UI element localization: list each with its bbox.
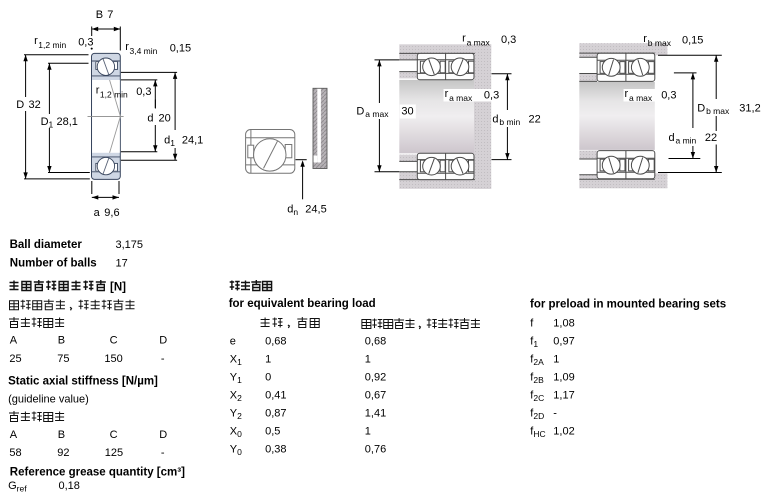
svg-text:0,3: 0,3 xyxy=(661,89,676,101)
svg-text:25: 25 xyxy=(9,353,21,365)
svg-text:22: 22 xyxy=(705,132,717,144)
svg-text:D1: D1 xyxy=(41,116,54,130)
svg-text:Y2: Y2 xyxy=(230,408,242,422)
svg-text:3,4 min: 3,4 min xyxy=(130,46,158,56)
svg-text:0,76: 0,76 xyxy=(365,443,386,455)
svg-text:a max: a max xyxy=(467,37,491,47)
svg-text:f2D: f2D xyxy=(530,408,544,422)
svg-text:f2A: f2A xyxy=(530,353,544,367)
svg-text:1,09: 1,09 xyxy=(553,371,574,383)
svg-text:0,67: 0,67 xyxy=(365,389,386,401)
svg-text:r: r xyxy=(625,88,629,100)
svg-text:b max: b max xyxy=(706,106,730,116)
svg-text:58: 58 xyxy=(9,447,21,459)
svg-text:b min: b min xyxy=(499,117,520,127)
svg-text:1: 1 xyxy=(265,353,271,365)
svg-text:1: 1 xyxy=(365,426,371,438)
svg-text:f2C: f2C xyxy=(530,389,544,403)
svg-text:B: B xyxy=(58,335,65,347)
svg-text:24,5: 24,5 xyxy=(305,204,326,216)
svg-text:31,2: 31,2 xyxy=(739,102,760,114)
svg-text:24,1: 24,1 xyxy=(182,135,203,147)
svg-text:92: 92 xyxy=(57,447,69,459)
svg-text:Ball diameter: Ball diameter xyxy=(10,239,83,251)
svg-text:0,18: 0,18 xyxy=(59,480,80,492)
svg-text:f: f xyxy=(530,317,534,329)
svg-text:C: C xyxy=(110,429,118,441)
svg-text:[N]: [N] xyxy=(110,281,126,293)
svg-text:(guideline value): (guideline value) xyxy=(8,393,89,405)
svg-text:for preload in mounted bearing: for preload in mounted bearing sets xyxy=(530,299,726,311)
svg-text:for equivalent bearing load: for equivalent bearing load xyxy=(229,298,376,310)
svg-text:a: a xyxy=(94,207,101,219)
svg-text:1,08: 1,08 xyxy=(553,317,574,329)
svg-text:1: 1 xyxy=(553,353,559,365)
svg-text:-: - xyxy=(161,447,165,459)
svg-text:28,1: 28,1 xyxy=(57,116,78,128)
svg-text:Number of balls: Number of balls xyxy=(10,257,97,269)
svg-text:17: 17 xyxy=(116,257,128,269)
svg-text:0,3: 0,3 xyxy=(136,86,151,98)
svg-text:75: 75 xyxy=(57,353,69,365)
svg-text:D: D xyxy=(697,102,705,114)
svg-text:a max: a max xyxy=(449,93,473,103)
svg-text:20: 20 xyxy=(159,112,171,124)
svg-text:A: A xyxy=(10,335,18,347)
svg-text:Y1: Y1 xyxy=(230,371,242,385)
svg-text:X2: X2 xyxy=(230,389,242,403)
svg-text:0,41: 0,41 xyxy=(265,389,286,401)
svg-text:A: A xyxy=(10,429,18,441)
svg-text:B: B xyxy=(58,429,65,441)
svg-text:9,6: 9,6 xyxy=(104,207,119,219)
svg-text:1,02: 1,02 xyxy=(553,426,574,438)
svg-text:0,3: 0,3 xyxy=(78,37,93,49)
svg-text:1,2 min: 1,2 min xyxy=(38,40,66,50)
svg-text:r: r xyxy=(445,88,449,100)
svg-text:D: D xyxy=(159,335,167,347)
svg-text:C: C xyxy=(110,335,118,347)
svg-text:f2B: f2B xyxy=(530,371,544,385)
svg-text:D: D xyxy=(16,99,24,111)
svg-text:1,2 min: 1,2 min xyxy=(100,89,128,99)
svg-text:r: r xyxy=(643,33,647,45)
svg-text:a min: a min xyxy=(676,135,697,145)
svg-text:X1: X1 xyxy=(230,353,242,367)
svg-text:0,3: 0,3 xyxy=(484,90,499,102)
svg-text:0,87: 0,87 xyxy=(265,408,286,420)
svg-text:dn: dn xyxy=(287,204,298,218)
svg-text:32: 32 xyxy=(29,99,41,111)
svg-text:0,68: 0,68 xyxy=(365,335,386,347)
svg-text:d: d xyxy=(492,114,498,126)
svg-text:D: D xyxy=(159,429,167,441)
svg-text:0,92: 0,92 xyxy=(365,371,386,383)
svg-text:r: r xyxy=(462,32,466,44)
svg-text:b max: b max xyxy=(648,38,672,48)
svg-text:fHC: fHC xyxy=(530,426,545,440)
svg-text:0,68: 0,68 xyxy=(265,335,286,347)
svg-text:0,97: 0,97 xyxy=(553,335,574,347)
svg-text:D: D xyxy=(356,106,364,118)
svg-text:d1: d1 xyxy=(164,135,175,149)
svg-text:d: d xyxy=(669,132,675,144)
svg-text:1: 1 xyxy=(365,353,371,365)
svg-text:-: - xyxy=(161,353,165,365)
svg-text:Static axial stiffness [N/µm]: Static axial stiffness [N/µm] xyxy=(8,375,158,387)
svg-text:0,5: 0,5 xyxy=(265,426,280,438)
svg-text:125: 125 xyxy=(105,447,123,459)
svg-text:Gref: Gref xyxy=(8,480,27,494)
svg-text:-: - xyxy=(553,408,557,420)
svg-text:0,38: 0,38 xyxy=(265,443,286,455)
svg-text:30: 30 xyxy=(401,106,413,118)
svg-text:Reference grease quantity [cm³: Reference grease quantity [cm³] xyxy=(10,467,185,479)
svg-text:e: e xyxy=(230,335,236,347)
svg-text:f1: f1 xyxy=(530,335,538,349)
svg-text:0,15: 0,15 xyxy=(170,43,191,55)
svg-text:a max: a max xyxy=(629,93,653,103)
svg-text:7: 7 xyxy=(107,9,113,21)
svg-text:Y0: Y0 xyxy=(230,443,242,457)
svg-text:X0: X0 xyxy=(230,426,242,440)
svg-text:a max: a max xyxy=(365,109,389,119)
svg-text:3,175: 3,175 xyxy=(116,239,144,251)
svg-text:22: 22 xyxy=(529,114,541,126)
svg-text:1,17: 1,17 xyxy=(553,389,574,401)
svg-text:0,15: 0,15 xyxy=(682,34,703,46)
svg-text:1,41: 1,41 xyxy=(365,408,386,420)
svg-text:150: 150 xyxy=(104,353,122,365)
svg-text:d: d xyxy=(147,112,153,124)
svg-text:0: 0 xyxy=(265,371,271,383)
svg-text:B: B xyxy=(96,9,103,21)
svg-text:0,3: 0,3 xyxy=(501,34,516,46)
